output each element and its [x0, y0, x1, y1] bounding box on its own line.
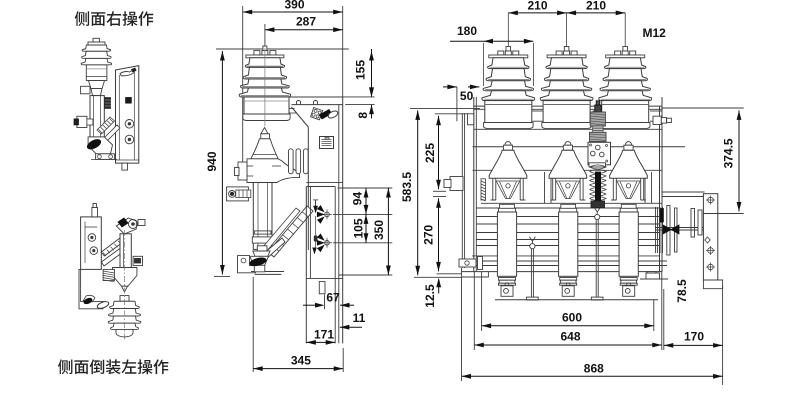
svg-text:170: 170 — [684, 330, 704, 344]
svg-text:868: 868 — [584, 362, 604, 376]
svg-text:94: 94 — [350, 192, 364, 206]
svg-text:600: 600 — [562, 311, 582, 325]
svg-text:210: 210 — [527, 0, 547, 12]
svg-text:105: 105 — [352, 218, 366, 238]
svg-text:11: 11 — [353, 311, 366, 325]
svg-text:78.5: 78.5 — [675, 279, 689, 303]
svg-text:50: 50 — [460, 89, 474, 103]
svg-text:225: 225 — [423, 143, 437, 163]
svg-text:940: 940 — [205, 151, 219, 171]
svg-text:M12: M12 — [643, 26, 667, 40]
svg-text:155: 155 — [353, 60, 367, 80]
svg-text:270: 270 — [421, 224, 435, 244]
svg-text:8: 8 — [356, 112, 370, 119]
svg-text:648: 648 — [560, 330, 580, 344]
svg-text:171: 171 — [314, 328, 334, 342]
svg-text:12.5: 12.5 — [423, 284, 437, 308]
svg-text:287: 287 — [296, 15, 316, 29]
svg-text:345: 345 — [291, 354, 311, 368]
svg-text:390: 390 — [284, 0, 304, 11]
svg-text:67: 67 — [326, 290, 340, 304]
svg-text:350: 350 — [372, 220, 386, 240]
svg-text:210: 210 — [586, 0, 606, 12]
svg-text:583.5: 583.5 — [400, 172, 414, 202]
svg-text:374.5: 374.5 — [721, 138, 735, 168]
svg-text:180: 180 — [457, 24, 477, 38]
